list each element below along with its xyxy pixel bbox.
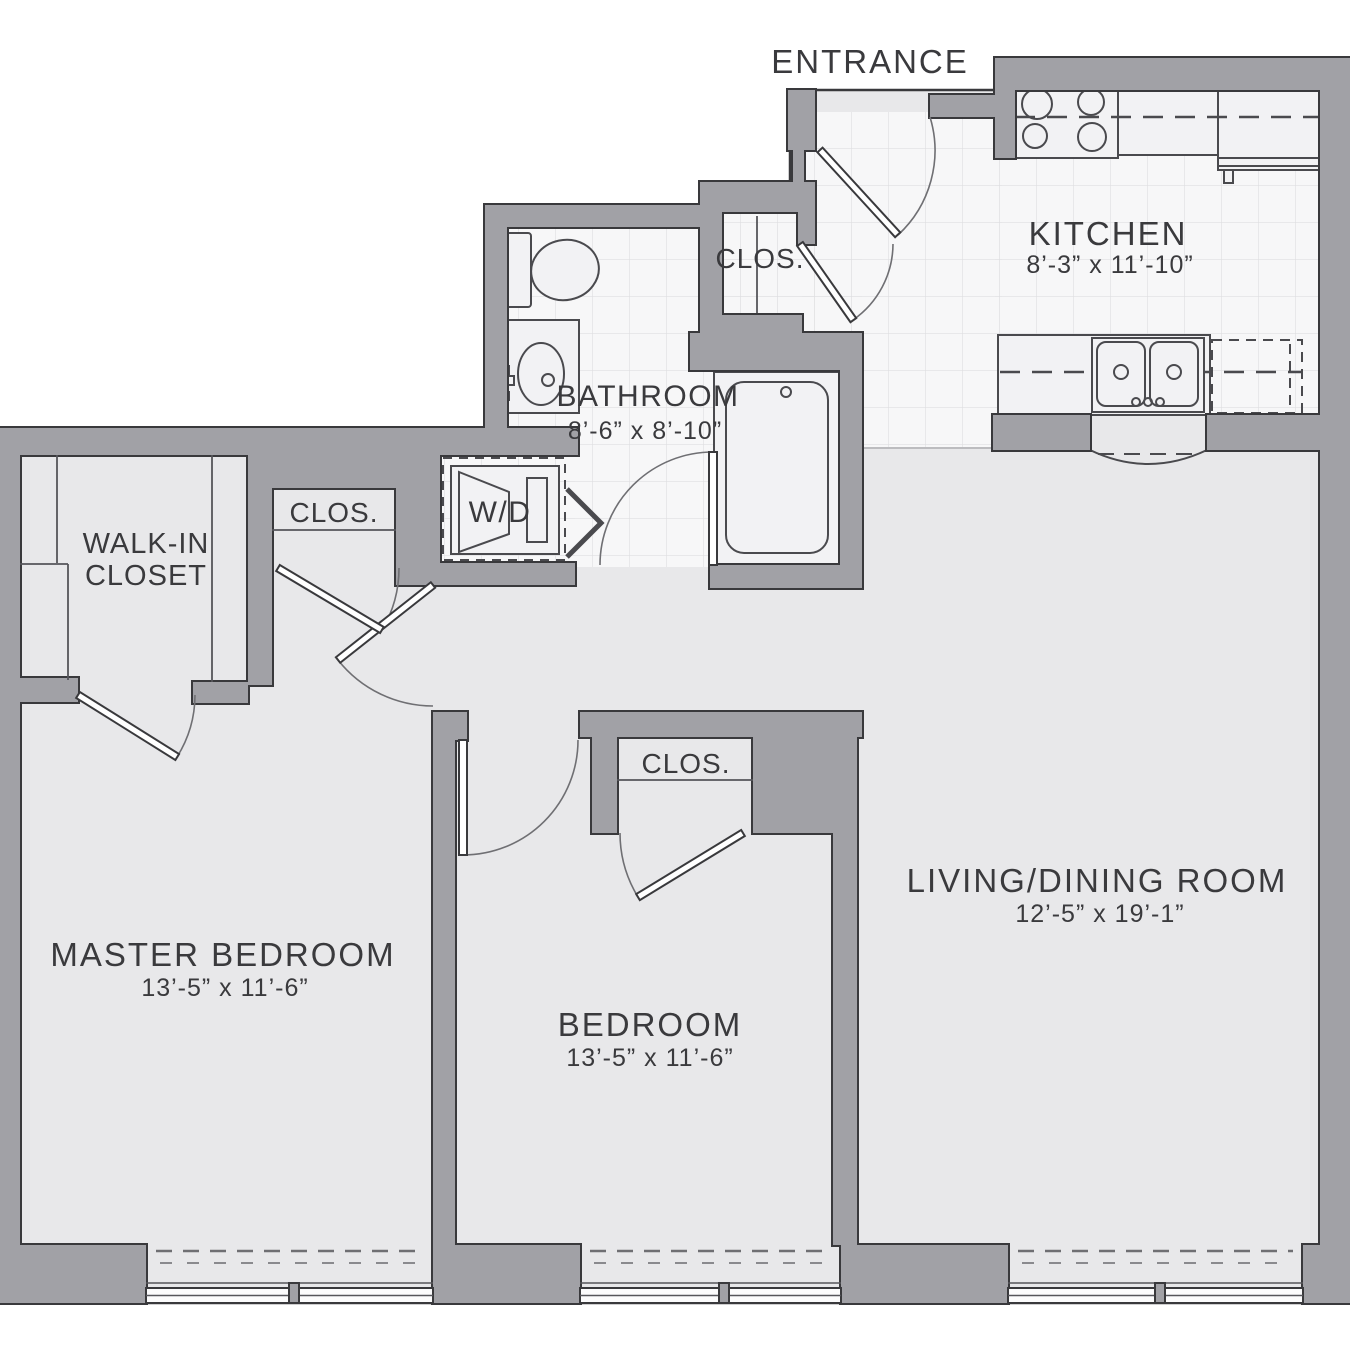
walk-in-closet-label-2: CLOSET <box>85 560 207 592</box>
window-mullion <box>719 1283 729 1303</box>
living-dining-dims: 12’-5” x 19’-1” <box>1015 900 1184 928</box>
bathroom-door-leaf <box>709 452 717 565</box>
bedroom-door-leaf <box>459 740 467 855</box>
bedroom-dims: 13’-5” x 11’-6” <box>566 1044 733 1072</box>
master-bedroom-dims: 13’-5” x 11’-6” <box>141 974 308 1002</box>
refrigerator-fixture <box>1218 90 1320 183</box>
double-sink-fixture <box>1092 338 1204 412</box>
hall-closet-label: CLOS. <box>289 497 378 528</box>
wd-label: W/D <box>469 496 532 529</box>
living-dining-label: LIVING/DINING ROOM <box>907 862 1288 899</box>
floor-plan-canvas: ENTRANCE KITCHEN 8’-3” x 11’-10” CLOS. B… <box>0 0 1350 1350</box>
entry-closet-label: CLOS. <box>715 243 804 274</box>
bathroom-label: BATHROOM <box>556 380 739 413</box>
walk-in-closet-label-1: WALK-IN <box>83 528 210 560</box>
bedroom-closet-label: CLOS. <box>641 748 730 779</box>
stove-fixture <box>1013 89 1118 158</box>
window-mullion <box>289 1283 299 1303</box>
window-mullion <box>1155 1283 1165 1303</box>
bathroom-dims: 8’-6” x 8’-10” <box>568 417 722 445</box>
kitchen-dims: 8’-3” x 11’-10” <box>1026 251 1193 279</box>
bedroom-label: BEDROOM <box>558 1006 743 1043</box>
floor-plan-page: ENTRANCE KITCHEN 8’-3” x 11’-10” CLOS. B… <box>0 0 1350 1350</box>
kitchen-label: KITCHEN <box>1029 215 1188 252</box>
entrance-label: ENTRANCE <box>771 43 969 80</box>
master-bedroom-label: MASTER BEDROOM <box>50 936 395 973</box>
